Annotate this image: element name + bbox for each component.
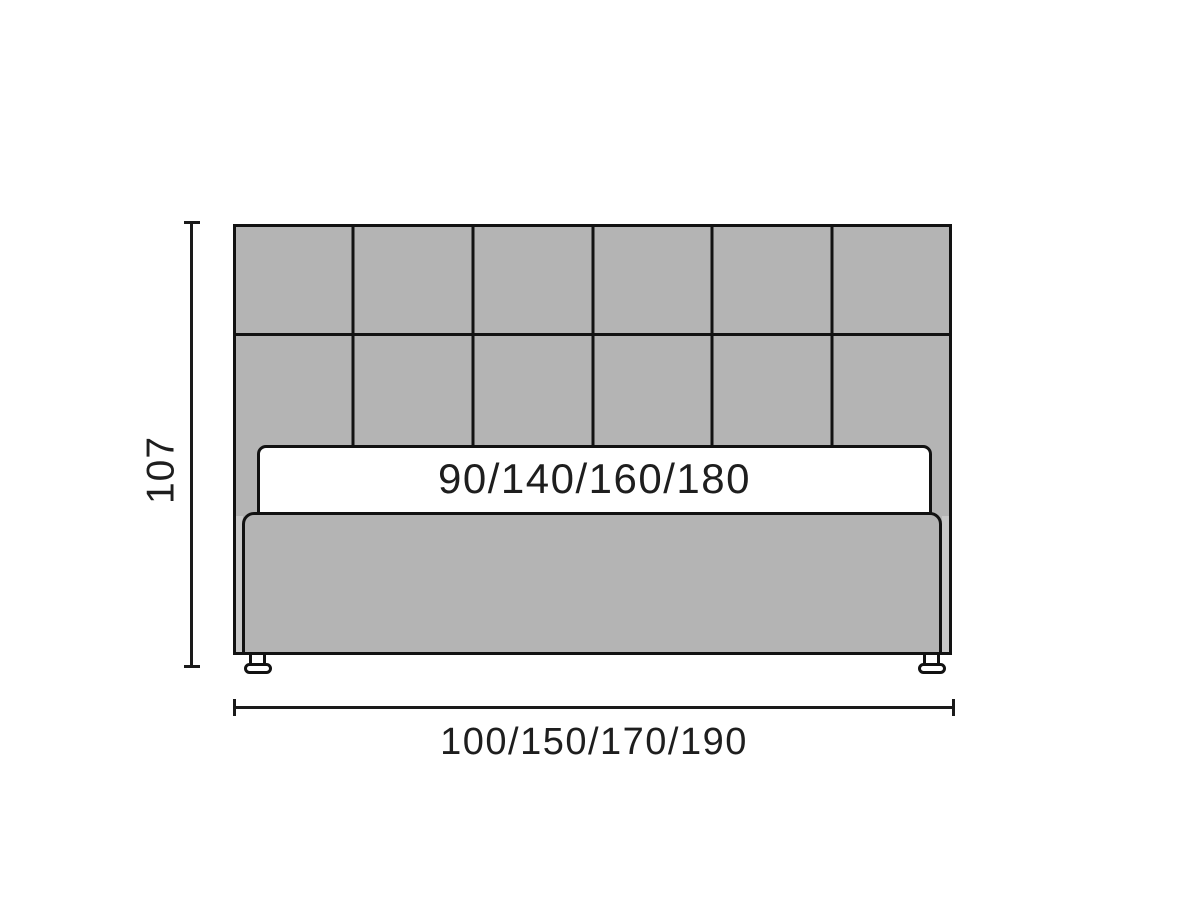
width-dimension-tick-left bbox=[233, 699, 236, 716]
height-dimension-tick-top bbox=[184, 221, 200, 224]
mattress: 90/140/160/180 bbox=[257, 445, 932, 515]
bed-base bbox=[242, 512, 942, 655]
mattress-width-options-label: 90/140/160/180 bbox=[438, 458, 751, 502]
bed-dimension-diagram: 90/140/160/180 107 100/150/170/190 bbox=[0, 0, 1200, 900]
headboard-side-strip-right bbox=[942, 516, 949, 652]
height-dimension-tick-bottom bbox=[184, 665, 200, 668]
bed-foot-pad-left bbox=[244, 663, 272, 674]
headboard-seam-vertical bbox=[591, 224, 594, 448]
headboard-seam-horizontal bbox=[233, 333, 952, 336]
headboard-seam-vertical bbox=[711, 224, 714, 448]
height-dimension-line bbox=[190, 222, 193, 668]
headboard-grid bbox=[233, 224, 952, 448]
height-dimension-label: 107 bbox=[142, 436, 181, 504]
headboard-seam-vertical bbox=[351, 224, 354, 448]
width-dimension-label: 100/150/170/190 bbox=[233, 723, 955, 761]
width-dimension-tick-right bbox=[952, 699, 955, 716]
width-dimension-line bbox=[233, 706, 955, 709]
headboard-seam-vertical bbox=[471, 224, 474, 448]
headboard-seam-vertical bbox=[831, 224, 834, 448]
bed-foot-pad-right bbox=[918, 663, 946, 674]
